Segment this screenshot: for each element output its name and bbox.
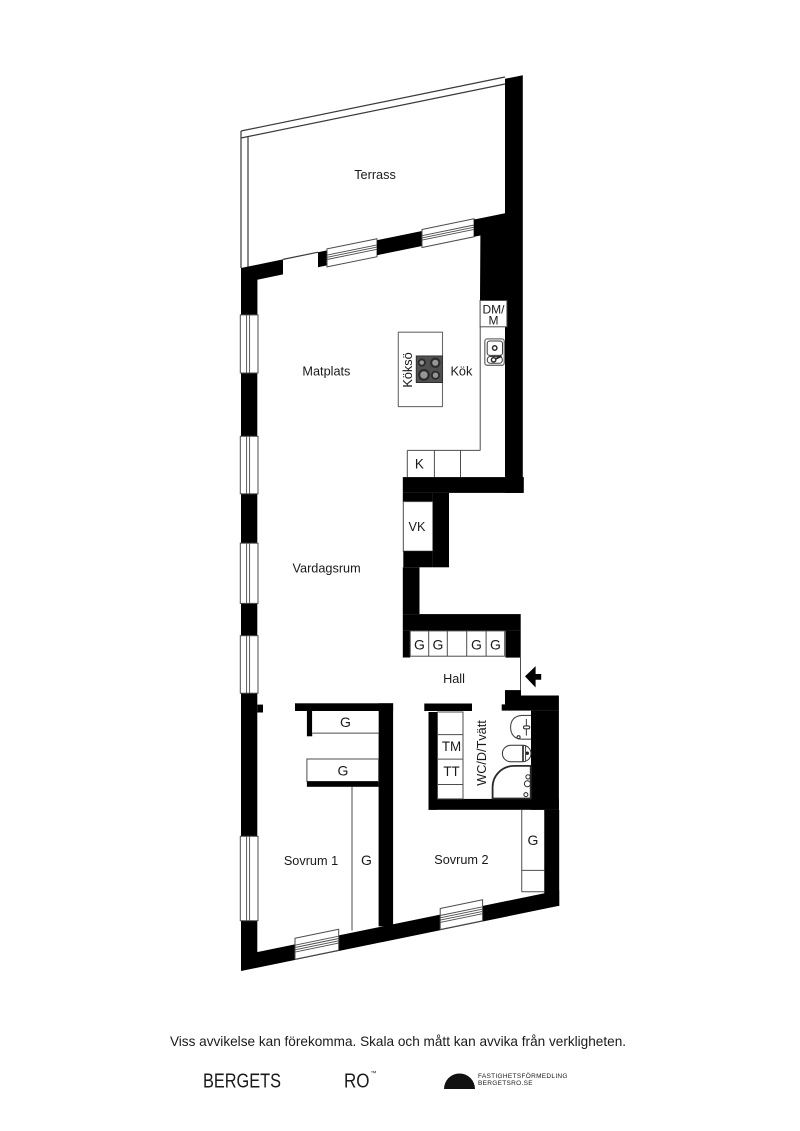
svg-text:™: ™ (371, 1070, 377, 1077)
svg-text:WC/D/Tvätt: WC/D/Tvätt (475, 720, 489, 786)
svg-text:Köksö: Köksö (401, 352, 415, 387)
svg-text:G: G (340, 714, 351, 730)
svg-text:K: K (415, 457, 424, 472)
svg-text:G: G (528, 832, 539, 848)
svg-text:Terrass: Terrass (354, 168, 396, 182)
svg-text:Sovrum 1: Sovrum 1 (284, 854, 338, 868)
svg-text:Matplats: Matplats (302, 364, 350, 378)
svg-text:G: G (414, 636, 425, 652)
svg-text:G: G (361, 852, 372, 868)
svg-text:Hall: Hall (443, 672, 465, 686)
svg-text:G: G (433, 636, 444, 652)
svg-text:G: G (471, 636, 482, 652)
svg-text:TT: TT (443, 764, 459, 779)
svg-text:VK: VK (409, 520, 426, 534)
svg-text:Viss avvikelse kan förekomma.: Viss avvikelse kan förekomma. Skala och … (170, 1034, 626, 1049)
svg-text:BERGETSRO.SE: BERGETSRO.SE (478, 1080, 533, 1087)
svg-text:FASTIGHETSFÖRMEDLING: FASTIGHETSFÖRMEDLING (478, 1072, 568, 1080)
svg-text:Kök: Kök (450, 364, 473, 378)
svg-text:Vardagsrum: Vardagsrum (293, 562, 361, 576)
svg-text:BERGETS: BERGETS (203, 1071, 281, 1093)
svg-text:RO: RO (344, 1071, 370, 1093)
svg-text:G: G (490, 636, 501, 652)
svg-text:G: G (337, 763, 348, 779)
svg-text:TM: TM (442, 739, 461, 754)
svg-text:M: M (489, 314, 499, 328)
svg-text:Sovrum 2: Sovrum 2 (434, 853, 488, 867)
